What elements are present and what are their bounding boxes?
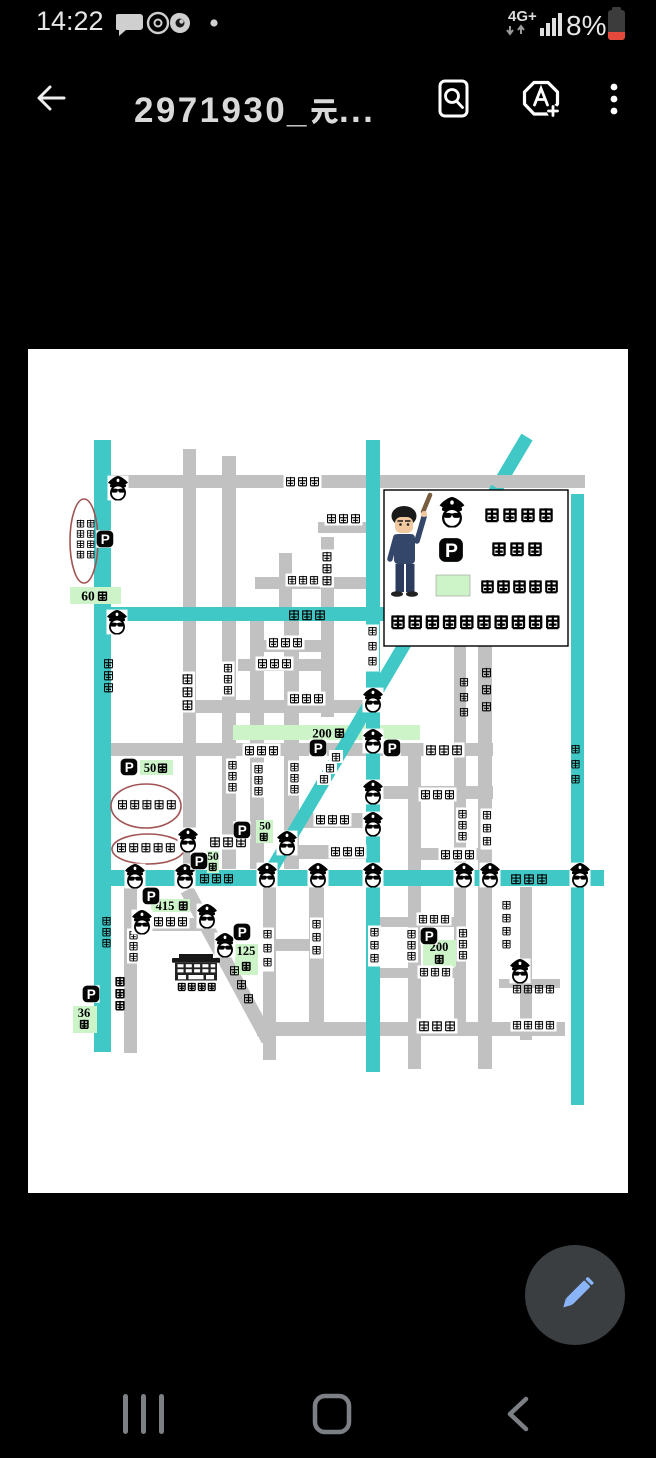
- svg-text:50: 50: [144, 761, 157, 775]
- svg-text:125: 125: [237, 944, 256, 958]
- svg-text:4G+: 4G+: [508, 8, 537, 25]
- svg-text:200: 200: [312, 726, 332, 741]
- svg-text:36: 36: [78, 1006, 91, 1020]
- svg-text:60: 60: [81, 589, 95, 604]
- svg-text:8%: 8%: [566, 10, 606, 41]
- svg-text:50: 50: [207, 851, 219, 863]
- svg-text:50: 50: [259, 821, 271, 833]
